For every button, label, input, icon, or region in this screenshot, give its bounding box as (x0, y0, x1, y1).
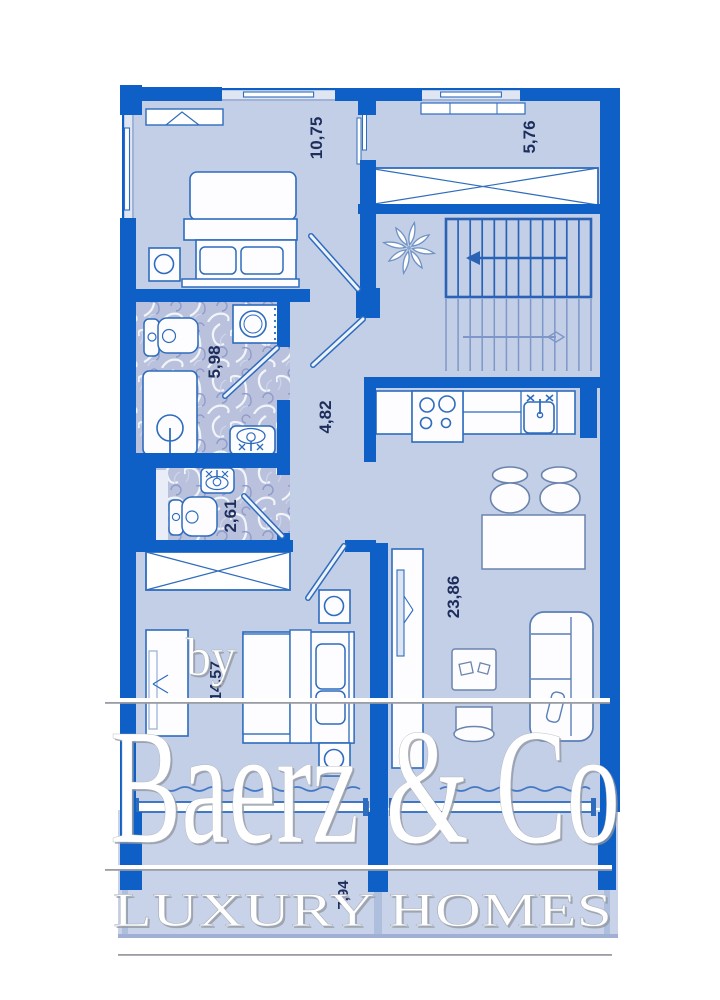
svg-text:Baerz & Co: Baerz & Co (110, 695, 620, 878)
svg-text:23,86: 23,86 (444, 576, 463, 619)
svg-text:LUXURY HOMES: LUXURY HOMES (113, 884, 612, 937)
svg-text:2,61: 2,61 (221, 499, 240, 532)
svg-text:10,75: 10,75 (307, 117, 326, 160)
svg-text:5,76: 5,76 (520, 120, 539, 153)
svg-text:by: by (186, 627, 236, 687)
svg-text:5,98: 5,98 (205, 345, 224, 378)
svg-text:4,82: 4,82 (316, 400, 335, 433)
